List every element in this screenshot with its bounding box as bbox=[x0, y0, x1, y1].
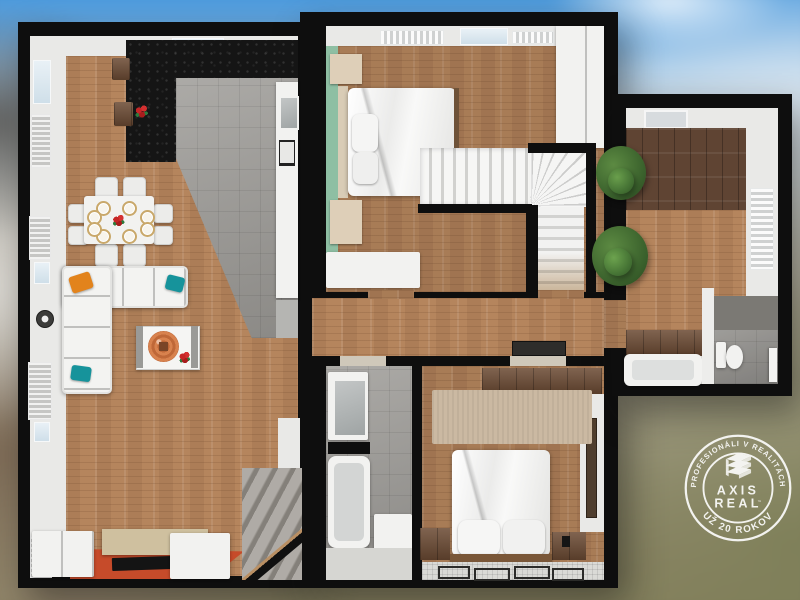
window-blind bbox=[31, 114, 51, 168]
floor-frame-decor bbox=[514, 566, 550, 579]
place-setting bbox=[140, 222, 155, 237]
bar-stool bbox=[114, 102, 133, 126]
bathtub-basin bbox=[334, 463, 364, 541]
staircase-down bbox=[242, 468, 302, 580]
stair-railing bbox=[242, 499, 302, 580]
window bbox=[34, 422, 50, 442]
window-sill bbox=[460, 28, 508, 45]
stair-nook-wall bbox=[526, 205, 538, 293]
table-centerpiece bbox=[112, 214, 126, 228]
ornament-center bbox=[159, 342, 168, 351]
brand-axis: AXIS bbox=[717, 484, 759, 498]
stacked-building-icon bbox=[726, 453, 751, 478]
dining-chair bbox=[153, 204, 173, 223]
wall-clock bbox=[36, 310, 54, 328]
tub-surround-panel bbox=[626, 330, 702, 356]
throw-pillow-teal bbox=[70, 365, 92, 383]
stair-nook-wall bbox=[418, 204, 532, 213]
axis-real-watermark: PROFESIONÁLI V REALITÁCH UŽ 20 ROKOV AXI… bbox=[682, 432, 794, 544]
window bbox=[33, 60, 51, 104]
place-setting bbox=[122, 229, 137, 244]
cooktop bbox=[279, 140, 295, 166]
stair-wall-stub bbox=[278, 418, 300, 470]
floor-frame-decor bbox=[474, 568, 510, 581]
nightstand bbox=[330, 200, 362, 244]
partition-wall bbox=[702, 288, 714, 384]
fruit-bowl bbox=[134, 104, 150, 120]
doormat bbox=[512, 341, 566, 356]
nightstand-dark bbox=[420, 528, 450, 560]
annex-bathtub-basin bbox=[632, 360, 694, 380]
bar-stool bbox=[112, 58, 130, 80]
stair-landing-threshold bbox=[538, 290, 584, 299]
dining-chair bbox=[123, 244, 146, 267]
floor-frame-decor bbox=[438, 566, 470, 579]
window bbox=[34, 262, 50, 284]
dresser bbox=[326, 252, 420, 288]
place-setting bbox=[87, 222, 102, 237]
trademark-symbol: ™ bbox=[758, 500, 762, 504]
tv-screen bbox=[112, 556, 172, 571]
annex-bathroom-wall bbox=[714, 296, 778, 334]
window-blind bbox=[29, 216, 51, 260]
vanity-mirror bbox=[333, 379, 367, 437]
wardrobe-white bbox=[556, 26, 604, 148]
shower-floor bbox=[326, 548, 412, 580]
bath-partition-wall bbox=[328, 442, 370, 454]
media-cabinet bbox=[32, 531, 94, 577]
radiator bbox=[380, 30, 444, 45]
table-lamp bbox=[562, 536, 570, 547]
toilet-tank bbox=[716, 342, 726, 368]
stair-nook-wall bbox=[528, 143, 596, 153]
winder-staircase bbox=[530, 153, 586, 207]
staircase-lower-flight bbox=[538, 207, 584, 290]
bed-pillow bbox=[352, 114, 378, 152]
door-opening-threshold bbox=[368, 290, 414, 299]
bed-pillow bbox=[353, 152, 378, 184]
coffee-table-side-frame bbox=[191, 326, 198, 368]
coffee-table-side-frame bbox=[136, 326, 143, 368]
table-plant bbox=[179, 351, 191, 365]
ceiling-light bbox=[644, 110, 688, 129]
white-storage-box bbox=[170, 533, 230, 579]
beige-rug bbox=[432, 390, 592, 444]
dining-chair bbox=[153, 226, 173, 245]
bed-pillow bbox=[458, 520, 500, 556]
toilet-bowl bbox=[726, 345, 743, 369]
tree-highlight bbox=[604, 248, 632, 276]
radiator bbox=[750, 188, 774, 270]
screenshot-root: PROFESIONÁLI V REALITÁCH UŽ 20 ROKOV AXI… bbox=[0, 0, 800, 600]
floor-frame-decor bbox=[552, 568, 584, 581]
tree-highlight bbox=[608, 168, 634, 194]
nightstand bbox=[330, 54, 362, 84]
kitchen-open-shelf bbox=[276, 300, 298, 338]
bed-headboard bbox=[338, 86, 348, 198]
bed-pillow bbox=[503, 520, 545, 556]
window-blind bbox=[28, 362, 52, 420]
radiator bbox=[512, 31, 554, 44]
bathroom-door bbox=[769, 348, 777, 382]
brand-real: REAL bbox=[714, 497, 761, 511]
kitchen-island-counter-arm bbox=[126, 40, 176, 162]
kitchen-sink bbox=[279, 96, 299, 130]
staircase-straight-flight bbox=[420, 148, 534, 206]
stair-nook-wall bbox=[586, 153, 596, 293]
dining-chair bbox=[95, 244, 118, 267]
